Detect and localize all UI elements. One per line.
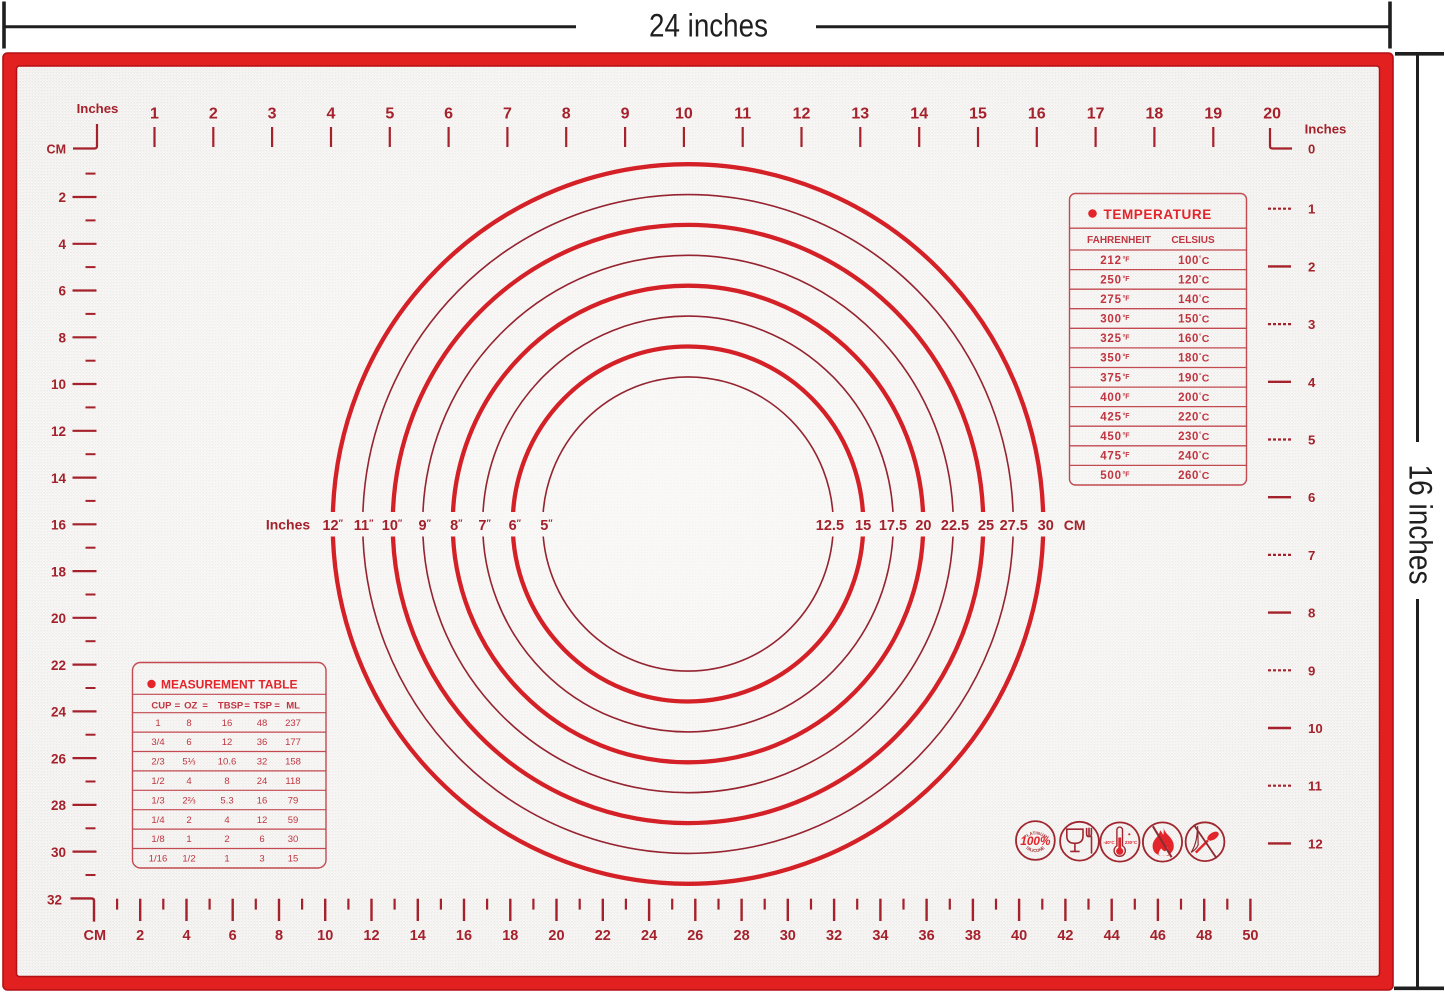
svg-text:16 inches: 16 inches: [1403, 465, 1439, 585]
svg-text:C: C: [1202, 353, 1210, 365]
svg-text:260: 260: [1178, 470, 1199, 482]
svg-text:237: 237: [285, 718, 301, 729]
svg-text:22: 22: [595, 928, 611, 944]
svg-text:46: 46: [1150, 928, 1166, 944]
svg-text:30: 30: [288, 834, 299, 845]
svg-text:1: 1: [1308, 202, 1315, 217]
svg-text:18: 18: [502, 928, 518, 944]
svg-text:1: 1: [155, 718, 160, 729]
svg-text:OZ: OZ: [184, 701, 197, 712]
svg-text:32: 32: [257, 757, 268, 768]
svg-text:15: 15: [969, 106, 987, 123]
svg-text:°F: °F: [1123, 255, 1131, 263]
svg-text:20: 20: [1263, 106, 1281, 123]
svg-text:CUP: CUP: [151, 701, 172, 712]
svg-text:18: 18: [51, 564, 67, 579]
svg-text:C: C: [1202, 431, 1210, 443]
svg-text:=: =: [244, 701, 250, 712]
svg-text:6: 6: [259, 834, 264, 845]
svg-text:°F: °F: [1123, 471, 1131, 479]
svg-text:12: 12: [793, 106, 811, 123]
svg-text:28: 28: [51, 798, 67, 813]
svg-text:8: 8: [224, 776, 229, 787]
svg-text:177: 177: [285, 737, 301, 748]
svg-text:2: 2: [58, 190, 66, 205]
svg-text:C: C: [1202, 255, 1210, 267]
svg-text:1/3: 1/3: [151, 795, 164, 806]
svg-text:30: 30: [51, 845, 66, 860]
svg-text:9: 9: [621, 106, 630, 123]
svg-text:10: 10: [317, 928, 333, 944]
svg-text:5.3: 5.3: [220, 795, 233, 806]
svg-text:CELSIUS: CELSIUS: [1171, 235, 1215, 246]
svg-text:18: 18: [1146, 106, 1164, 123]
svg-text:28: 28: [734, 928, 750, 944]
svg-text:3: 3: [1308, 317, 1315, 332]
svg-text:5⅓: 5⅓: [182, 757, 195, 768]
svg-text:C: C: [1202, 411, 1210, 423]
svg-text:240: 240: [1178, 451, 1199, 463]
svg-text:C: C: [1202, 294, 1210, 306]
svg-text:C: C: [1202, 314, 1210, 326]
svg-text:40: 40: [1011, 928, 1027, 944]
svg-text:16: 16: [1028, 106, 1046, 123]
svg-text:2: 2: [136, 928, 144, 944]
svg-text:19: 19: [1204, 106, 1222, 123]
svg-text:15: 15: [288, 854, 299, 865]
svg-text:°F: °F: [1123, 451, 1131, 459]
svg-text:1: 1: [150, 106, 159, 123]
svg-text:120: 120: [1178, 274, 1199, 286]
svg-text:1/8: 1/8: [151, 834, 164, 845]
svg-text:6: 6: [229, 928, 237, 944]
svg-text:14: 14: [410, 928, 426, 944]
svg-text:50: 50: [1242, 928, 1258, 944]
svg-text:6: 6: [186, 737, 191, 748]
svg-text:-40°C: -40°C: [1103, 840, 1115, 845]
svg-text:12: 12: [257, 815, 268, 826]
svg-text:1/16: 1/16: [149, 854, 168, 865]
svg-text:22: 22: [51, 658, 66, 673]
svg-text:14: 14: [910, 106, 928, 123]
svg-text:59: 59: [288, 815, 299, 826]
svg-text:200: 200: [1178, 392, 1199, 404]
svg-text:118: 118: [285, 776, 300, 787]
svg-text:100: 100: [1178, 255, 1199, 267]
svg-text:5: 5: [1308, 433, 1315, 448]
svg-text:25: 25: [978, 518, 994, 534]
svg-text:°F: °F: [1123, 392, 1131, 400]
svg-text:475: 475: [1100, 451, 1122, 463]
svg-text:8: 8: [275, 928, 283, 944]
svg-text:1/4: 1/4: [151, 815, 164, 826]
svg-text:16: 16: [257, 795, 268, 806]
svg-text:16: 16: [51, 518, 67, 533]
svg-text:30: 30: [780, 928, 796, 944]
svg-text:16: 16: [456, 928, 472, 944]
svg-text:3: 3: [259, 854, 264, 865]
svg-text:CM: CM: [1064, 517, 1086, 533]
svg-text:2: 2: [209, 106, 218, 123]
svg-text:12: 12: [363, 928, 379, 944]
svg-text:375: 375: [1100, 372, 1122, 384]
svg-text:Inches: Inches: [1305, 122, 1347, 137]
svg-text:7: 7: [1308, 548, 1315, 563]
svg-text:230: 230: [1178, 431, 1199, 443]
svg-text:2: 2: [1308, 259, 1315, 274]
svg-text:150: 150: [1178, 314, 1199, 326]
svg-text:180: 180: [1178, 353, 1199, 365]
svg-text:17.5: 17.5: [879, 518, 907, 534]
svg-text:9: 9: [1308, 663, 1315, 678]
svg-text:12: 12: [222, 737, 233, 748]
svg-text:3/4: 3/4: [151, 737, 164, 748]
svg-text:C: C: [1202, 274, 1210, 286]
svg-text:10: 10: [675, 106, 693, 123]
svg-text:CM: CM: [84, 928, 107, 944]
svg-text:12: 12: [1308, 836, 1323, 851]
svg-text:16: 16: [222, 718, 233, 729]
svg-text:26: 26: [687, 928, 703, 944]
svg-text:44: 44: [1104, 928, 1120, 944]
svg-text:10: 10: [51, 377, 66, 392]
svg-text:27.5: 27.5: [1000, 518, 1028, 534]
svg-text:3: 3: [268, 106, 277, 123]
svg-text:4: 4: [58, 237, 66, 252]
svg-text:2: 2: [186, 815, 191, 826]
svg-text:°F: °F: [1123, 334, 1131, 342]
svg-text:°F: °F: [1123, 314, 1131, 322]
svg-text:158: 158: [285, 757, 301, 768]
svg-text:38: 38: [965, 928, 981, 944]
svg-text:36: 36: [257, 737, 268, 748]
svg-text:220: 220: [1178, 411, 1199, 423]
svg-text:°F: °F: [1123, 373, 1131, 381]
svg-text:C: C: [1202, 451, 1210, 463]
svg-text:2: 2: [224, 834, 229, 845]
svg-text:1: 1: [224, 854, 229, 865]
svg-text:24 inches: 24 inches: [649, 8, 768, 44]
svg-text:11: 11: [1308, 779, 1322, 794]
svg-text:425: 425: [1100, 411, 1122, 423]
svg-text:32: 32: [47, 893, 62, 908]
svg-text:=: =: [175, 701, 181, 712]
svg-text:=: =: [274, 701, 280, 712]
svg-text:79: 79: [288, 795, 299, 806]
svg-text:°F: °F: [1123, 275, 1131, 283]
svg-text:12: 12: [51, 424, 66, 439]
svg-text:5: 5: [385, 106, 394, 123]
svg-text:6: 6: [444, 106, 453, 123]
svg-text:MEASUREMENT TABLE: MEASUREMENT TABLE: [161, 678, 297, 692]
svg-text:4: 4: [1308, 375, 1316, 390]
svg-text:20: 20: [915, 518, 931, 534]
svg-text:=: =: [202, 701, 208, 712]
svg-text:48: 48: [257, 718, 268, 729]
svg-text:11: 11: [734, 106, 751, 123]
svg-text:8: 8: [562, 106, 571, 123]
svg-text:2⅔: 2⅔: [182, 795, 195, 806]
svg-text:TBSP: TBSP: [218, 701, 244, 712]
svg-text:1/2: 1/2: [182, 854, 195, 865]
svg-text:2/3: 2/3: [151, 757, 164, 768]
svg-text:275: 275: [1100, 294, 1122, 306]
svg-text:8: 8: [186, 718, 191, 729]
svg-text:C: C: [1202, 392, 1210, 404]
svg-text:°F: °F: [1123, 295, 1131, 303]
svg-text:22.5: 22.5: [941, 518, 969, 534]
svg-text:300: 300: [1100, 314, 1122, 326]
svg-text:Inches: Inches: [266, 517, 311, 533]
svg-text:6: 6: [1308, 490, 1315, 505]
svg-text:24: 24: [641, 928, 657, 944]
svg-text:230°C: 230°C: [1125, 840, 1138, 845]
svg-text:C: C: [1202, 333, 1210, 345]
svg-text:4: 4: [224, 815, 229, 826]
svg-text:FAHRENHEIT: FAHRENHEIT: [1087, 235, 1151, 246]
svg-text:32: 32: [826, 928, 842, 944]
svg-text:6: 6: [58, 284, 66, 299]
svg-text:4: 4: [182, 928, 190, 944]
svg-text:13: 13: [851, 106, 869, 123]
svg-text:8: 8: [1308, 606, 1315, 621]
svg-text:20: 20: [548, 928, 564, 944]
svg-text:0: 0: [1308, 142, 1315, 157]
svg-text:°F: °F: [1123, 412, 1131, 420]
svg-text:4: 4: [327, 106, 336, 123]
svg-text:Inches: Inches: [77, 101, 119, 116]
svg-text:48: 48: [1196, 928, 1212, 944]
svg-text:250: 250: [1100, 274, 1122, 286]
svg-text:7: 7: [503, 106, 512, 123]
svg-text:10.6: 10.6: [218, 757, 237, 768]
svg-text:30: 30: [1038, 518, 1054, 534]
svg-text:TEMPERATURE: TEMPERATURE: [1104, 207, 1212, 222]
svg-text:160: 160: [1178, 333, 1199, 345]
svg-text:42: 42: [1057, 928, 1073, 944]
svg-text:500: 500: [1100, 470, 1122, 482]
svg-text:1: 1: [186, 834, 191, 845]
svg-text:°F: °F: [1123, 353, 1131, 361]
svg-text:10: 10: [1308, 721, 1323, 736]
svg-text:36: 36: [919, 928, 935, 944]
svg-text:34: 34: [872, 928, 888, 944]
svg-text:350: 350: [1100, 353, 1122, 365]
svg-text:C: C: [1202, 470, 1210, 482]
svg-text:°F: °F: [1123, 432, 1131, 440]
svg-text:325: 325: [1100, 333, 1122, 345]
svg-text:17: 17: [1087, 106, 1105, 123]
svg-text:190: 190: [1178, 372, 1199, 384]
svg-text:212: 212: [1100, 255, 1122, 267]
svg-text:24: 24: [257, 776, 268, 787]
svg-text:400: 400: [1100, 392, 1122, 404]
svg-text:4: 4: [186, 776, 191, 787]
svg-text:450: 450: [1100, 431, 1122, 443]
svg-text:14: 14: [51, 471, 67, 486]
svg-text:8: 8: [58, 331, 66, 346]
svg-text:ML: ML: [286, 701, 300, 712]
svg-text:C: C: [1202, 372, 1210, 384]
svg-text:20: 20: [51, 611, 66, 626]
svg-text:15: 15: [855, 518, 871, 534]
svg-text:TSP: TSP: [254, 701, 273, 712]
svg-text:CM: CM: [47, 143, 66, 157]
svg-text:24: 24: [51, 705, 67, 720]
svg-text:26: 26: [51, 751, 67, 766]
svg-text:140: 140: [1178, 294, 1199, 306]
svg-text:12.5: 12.5: [816, 518, 844, 534]
svg-text:1/2: 1/2: [151, 776, 164, 787]
